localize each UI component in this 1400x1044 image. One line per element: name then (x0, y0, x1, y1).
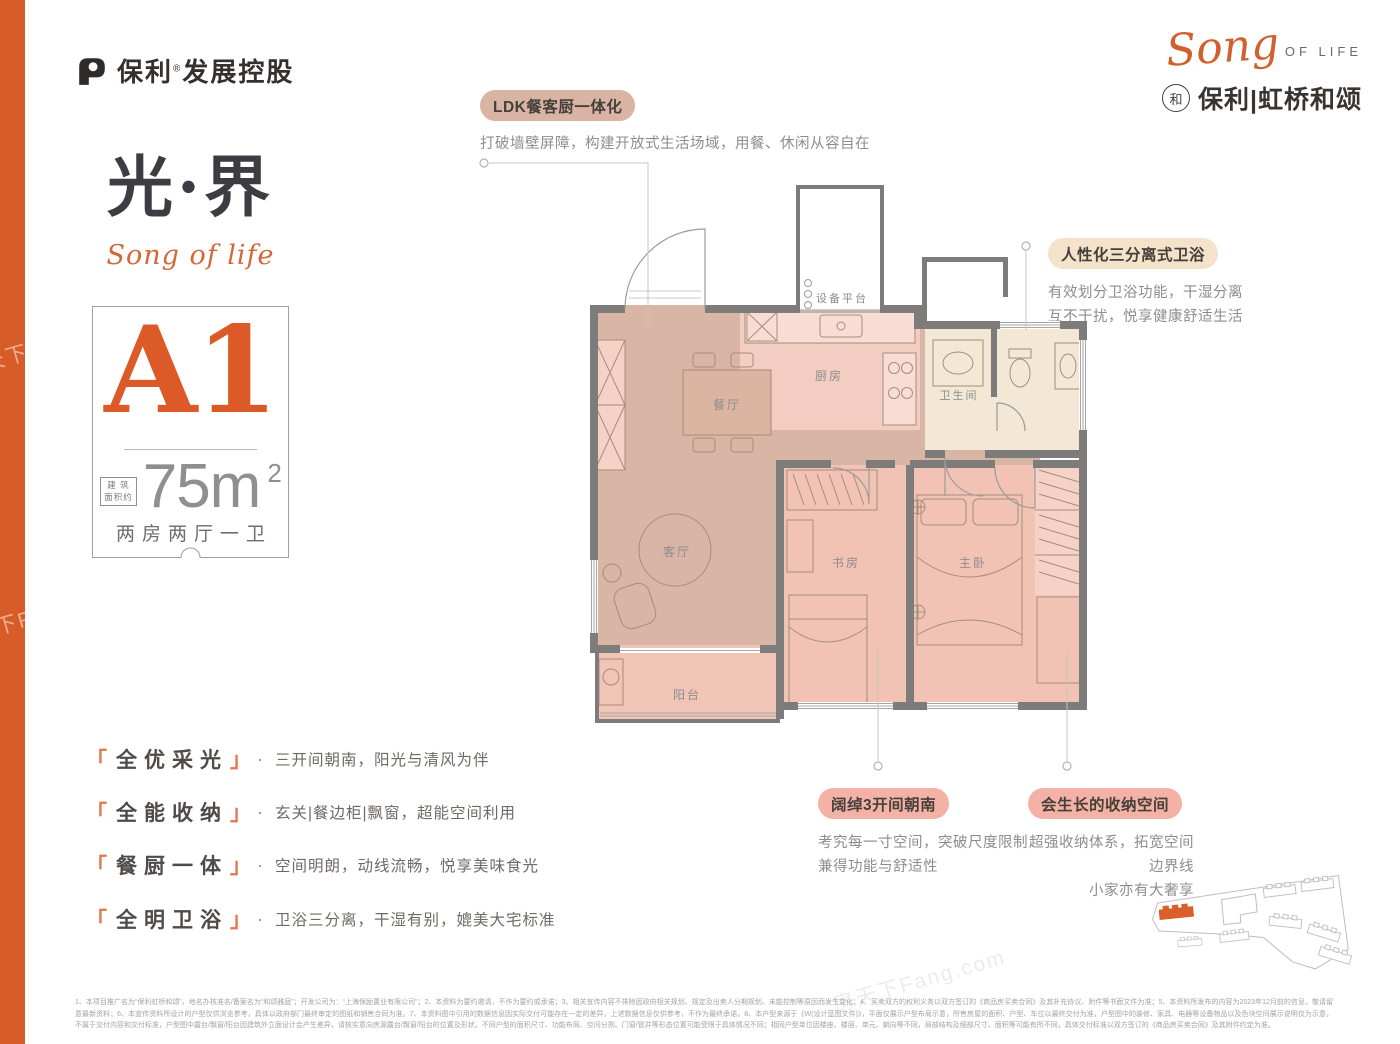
bracket-close: 」 (230, 797, 251, 827)
callout-bays-desc-2: 兼得功能与舒适性 (818, 855, 1028, 879)
watermark: 房天下Fang.com (1129, 424, 1309, 502)
unit-card: A1 建 筑 面积约 75m 2 两房两厅一卫 (92, 306, 289, 558)
callout-ldk-desc: 打破墙壁屏障，构建开放式生活场域，用餐、休闲从容自在 (480, 132, 870, 156)
disclaimer-text: 1、本项目推广名为“保利虹桥和颂”，地名办核准名/备案名为“和颂雅庭”；开发公司… (75, 997, 1333, 1032)
brand-badge-icon: 和 (1162, 84, 1190, 112)
site-buildings (1175, 875, 1354, 973)
label-living: 客厅 (663, 544, 691, 559)
area-value: 75m (143, 458, 261, 515)
feature-desc: 三开间朝南，阳光与清风为伴 (275, 748, 490, 770)
feature-dot: · (257, 749, 263, 770)
unit-layout: 两房两厅一卫 (92, 519, 289, 546)
feature-row: 「全优采光」·三开间朝南，阳光与清风为伴 (86, 744, 490, 774)
bracket-close: 」 (230, 850, 251, 880)
project-name: 保利|虹桥和颂 (1198, 80, 1362, 116)
room-bathroom (925, 325, 1085, 450)
wardrobe-strip (1035, 465, 1085, 595)
project-brand: SongOF LIFE 和 保利|虹桥和颂 (1162, 26, 1362, 116)
floorplan: 设备平台 厨房 餐厅 客厅 阳台 书房 主卧 卫生间 (565, 165, 1105, 730)
feature-row: 「全能收纳」·玄关|餐边柜|飘窗，超能空间利用 (86, 797, 516, 827)
feature-desc: 卫浴三分离，干湿有别，媲美大宅标准 (275, 908, 556, 930)
label-master: 主卧 (959, 556, 987, 570)
bracket-open: 「 (86, 904, 107, 934)
callout-ldk-pill: LDK餐客厨一体化 (480, 90, 635, 121)
site-highlighted-building (1159, 903, 1194, 919)
unit-code: A1 (92, 306, 289, 436)
feature-row: 「全明卫浴」·卫浴三分离，干湿有别，媲美大宅标准 (86, 904, 556, 934)
poster-canvas: 房天下Fang.com 房天下Fang.com 房天下Fang.com 房天下F… (0, 0, 1400, 1044)
area-label-box: 建 筑 面积约 (100, 477, 137, 506)
label-balcony: 阳台 (673, 687, 701, 702)
site-l-building (1221, 894, 1257, 925)
label-bathroom: 卫生间 (940, 388, 979, 402)
label-dining: 餐厅 (713, 397, 741, 412)
bracket-close: 」 (230, 904, 251, 934)
brand-script-suffix: OF LIFE (1285, 44, 1362, 59)
bracket-open: 「 (86, 744, 107, 774)
developer-logo-text: 保利®发展控股 (117, 52, 294, 89)
feature-desc: 玄关|餐边柜|飘窗，超能空间利用 (275, 801, 516, 823)
feature-title: 全优采光 (109, 744, 228, 774)
callout-ldk: LDK餐客厨一体化 打破墙壁屏障，构建开放式生活场域，用餐、休闲从容自在 (480, 90, 870, 156)
feature-desc: 空间明朗，动线流畅，悦享美味食光 (275, 854, 539, 876)
callout-bays: 阔绰3开间朝南 考究每一寸空间，突破尺度限制 兼得功能与舒适性 (818, 788, 1028, 879)
label-study: 书房 (832, 555, 860, 570)
feature-dot: · (257, 909, 263, 930)
area-exponent: 2 (267, 458, 281, 489)
feature-title: 全能收纳 (109, 797, 228, 827)
bracket-open: 「 (86, 797, 107, 827)
site-plan (1145, 862, 1365, 992)
poly-logo-icon (76, 55, 108, 87)
brand-script-text: Song (1164, 22, 1280, 74)
flue-alcove (922, 257, 1008, 323)
hero-script: Song of life (88, 240, 293, 271)
feature-title: 全明卫浴 (109, 904, 228, 934)
site-boundary (1151, 875, 1350, 977)
room-study (780, 465, 910, 710)
developer-logo: 保利®发展控股 (76, 52, 294, 89)
bracket-close: 」 (230, 744, 251, 774)
feature-title: 餐厨一体 (109, 850, 228, 880)
label-kitchen: 厨房 (815, 368, 843, 383)
left-accent-bar (0, 0, 25, 1044)
callout-storage-pill: 会生长的收纳空间 (1028, 788, 1182, 819)
feature-dot: · (257, 802, 263, 823)
feature-dot: · (257, 855, 263, 876)
label-equipment: 设备平台 (816, 291, 868, 305)
hero-title: 光·界 (88, 148, 293, 227)
callout-bays-pill: 阔绰3开间朝南 (818, 788, 949, 819)
bracket-open: 「 (86, 850, 107, 880)
unit-card-divider (124, 449, 257, 450)
feature-row: 「餐厨一体」·空间明朗，动线流畅，悦享美味食光 (86, 850, 539, 880)
callout-bays-desc-1: 考究每一寸空间，突破尺度限制 (818, 831, 1028, 855)
